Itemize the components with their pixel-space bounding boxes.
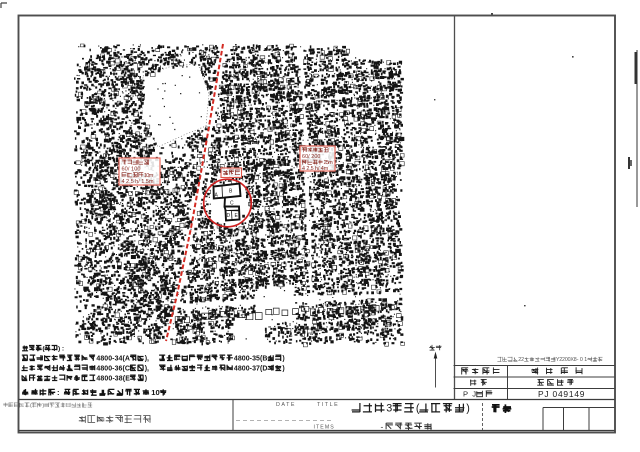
svg-text:4800-37(D: 4800-37(D [234, 365, 268, 372]
svg-text:DATE: DATE [276, 402, 296, 408]
svg-text:60/ 200: 60/ 200 [302, 154, 320, 160]
svg-text:): ) [282, 365, 284, 372]
svg-text:): ) [145, 375, 147, 382]
svg-text:): ) [42, 403, 44, 409]
svg-text:4 2.5 h/ 1.5m: 4 2.5 h/ 1.5m [122, 179, 154, 185]
svg-text:4800-34(A: 4800-34(A [96, 355, 129, 362]
svg-text:60/ 100: 60/ 100 [122, 167, 141, 173]
svg-text:22: 22 [518, 357, 524, 363]
svg-text:P J: P J [463, 390, 476, 399]
svg-text:) :: ) : [58, 346, 64, 353]
svg-text:ITEMS: ITEMS [314, 425, 335, 431]
svg-text:-01: -01 [577, 357, 588, 363]
svg-text:): ) [282, 355, 284, 362]
svg-text::: : [57, 388, 60, 397]
svg-text:Y2200X8: Y2200X8 [556, 357, 577, 363]
svg-text:(: ( [416, 403, 420, 415]
svg-text:(: ( [30, 403, 32, 409]
svg-text:PJ 049149: PJ 049149 [538, 389, 585, 399]
svg-text:D: D [227, 213, 231, 219]
svg-text:): ) [466, 403, 470, 415]
svg-text:10: 10 [151, 388, 160, 397]
svg-text:25m: 25m [324, 160, 334, 166]
svg-text:C: C [230, 201, 234, 207]
svg-text:4 2.5 h/ 4m: 4 2.5 h/ 4m [302, 166, 329, 172]
svg-text:-: - [381, 422, 384, 432]
svg-text:10m: 10m [144, 173, 154, 179]
svg-text:4800-36(C: 4800-36(C [96, 365, 129, 372]
svg-text:),: ), [145, 365, 149, 372]
svg-text:3: 3 [386, 403, 392, 415]
svg-text:TITLE: TITLE [317, 402, 339, 408]
svg-text:4800-35(B: 4800-35(B [234, 355, 268, 362]
svg-text:4800-38(E: 4800-38(E [96, 375, 130, 382]
svg-text:),: ), [145, 355, 149, 362]
